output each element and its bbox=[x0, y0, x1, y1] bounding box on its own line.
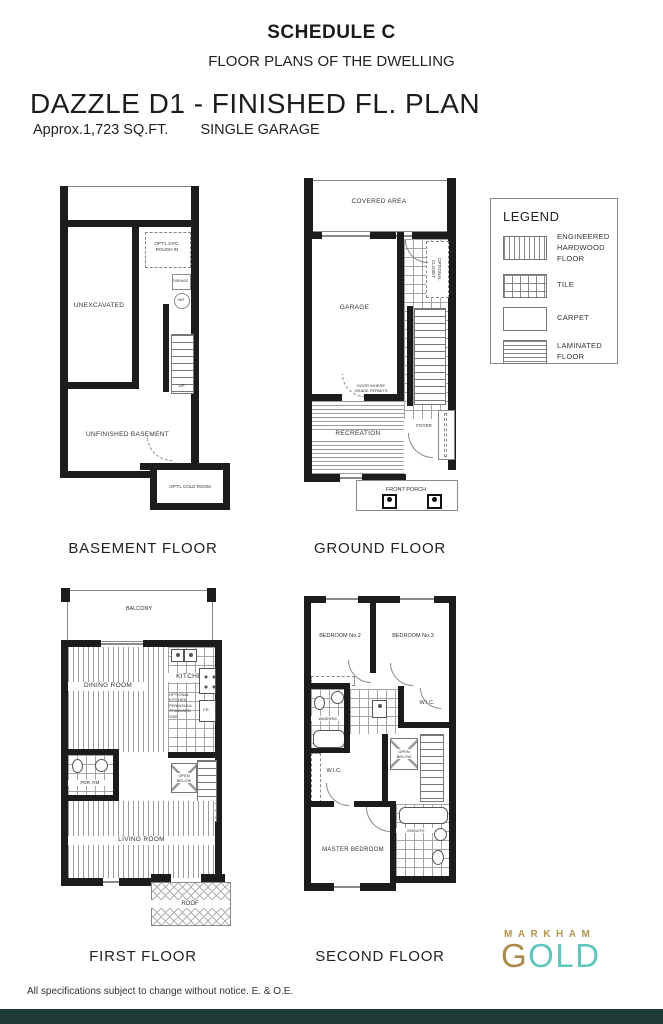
wall bbox=[201, 874, 225, 882]
wall bbox=[304, 883, 334, 891]
wall bbox=[151, 874, 171, 882]
room-label-recreation: RECREATION bbox=[312, 430, 404, 439]
wall bbox=[61, 588, 70, 602]
fridge-label: FR. bbox=[199, 707, 214, 712]
markham-gold-logo: MARKHAM GOLD bbox=[501, 929, 651, 971]
wall bbox=[304, 394, 342, 401]
wall bbox=[60, 220, 199, 227]
dining-room-floor bbox=[68, 647, 168, 752]
room-label-bedroom2: BEDROOM No.2 bbox=[311, 633, 369, 640]
sink-icon bbox=[434, 828, 447, 841]
wall bbox=[61, 640, 68, 885]
wall-line bbox=[60, 186, 199, 187]
plan-garage: SINGLE GARAGE bbox=[200, 122, 319, 138]
vanity-icon bbox=[372, 700, 387, 718]
wall bbox=[143, 640, 222, 647]
logo-gold-old: OLD bbox=[528, 937, 600, 974]
wall bbox=[398, 722, 456, 728]
wall bbox=[60, 471, 152, 478]
wall bbox=[449, 596, 456, 880]
room-label-garage: GARAGE bbox=[312, 304, 397, 313]
tile-swatch bbox=[503, 274, 547, 298]
wall bbox=[304, 178, 313, 239]
wall bbox=[304, 596, 311, 890]
room-label-rough-in: OPT'L 3-PC. ROUGH IN bbox=[146, 241, 188, 253]
wall bbox=[360, 883, 396, 891]
stair-wall bbox=[407, 306, 413, 406]
disclaimer-text: All specifications subject to change wit… bbox=[27, 986, 293, 997]
furnace-label: FURNACE bbox=[172, 279, 189, 283]
bathtub-icon bbox=[399, 807, 448, 824]
engineered-hardwood-swatch bbox=[503, 236, 547, 260]
room-label-balcony: BALCONY bbox=[67, 606, 211, 613]
patio-door-line bbox=[101, 643, 143, 645]
toilet-icon bbox=[432, 850, 444, 865]
sink-icon bbox=[331, 691, 344, 704]
footer-bar bbox=[0, 1009, 663, 1024]
open-below-label: OPEN BELOW bbox=[396, 749, 412, 760]
legend-title: LEGEND bbox=[503, 209, 617, 224]
plan-specs: Approx.1,723 SQ.FT. SINGLE GARAGE bbox=[33, 122, 348, 138]
wall bbox=[191, 186, 199, 470]
wall bbox=[60, 382, 139, 389]
room-label-roof: ROOF bbox=[151, 900, 229, 908]
ground-caption: GROUND FLOOR bbox=[300, 540, 460, 557]
window-line bbox=[340, 477, 362, 479]
wall bbox=[358, 596, 400, 603]
wall bbox=[61, 878, 103, 886]
open-below-box: OPEN BELOW bbox=[390, 738, 418, 770]
wall bbox=[168, 752, 222, 758]
sink-icon bbox=[95, 759, 108, 772]
first-caption: FIRST FLOOR bbox=[55, 948, 231, 965]
room-label-unexcavated: UNEXCAVATED bbox=[63, 302, 135, 311]
bathtub-icon bbox=[313, 730, 345, 748]
room-label-optional-closet: OPTIONAL CLOSET bbox=[430, 244, 442, 294]
stair-wall bbox=[382, 734, 388, 804]
wall bbox=[113, 749, 119, 799]
door-arc bbox=[408, 433, 433, 458]
porch-post-icon bbox=[382, 494, 397, 509]
plan-area: Approx.1,723 SQ.FT. bbox=[33, 122, 168, 138]
door-arc bbox=[147, 436, 172, 461]
legend-item-label: LAMINATED FLOOR bbox=[557, 341, 617, 363]
door-arc bbox=[342, 374, 365, 397]
wall bbox=[364, 394, 404, 401]
carpet-swatch bbox=[503, 307, 547, 331]
legend-item: ENGINEERED HARDWOOD FLOOR bbox=[503, 232, 617, 265]
toilet-icon bbox=[314, 696, 325, 710]
room-label-washroom: WASHRM bbox=[311, 716, 344, 721]
stair-wall bbox=[163, 304, 169, 392]
wall bbox=[140, 463, 230, 470]
wall bbox=[304, 232, 312, 482]
basement-caption: BASEMENT FLOOR bbox=[55, 540, 231, 557]
kitchen-sink-icon bbox=[171, 649, 184, 662]
schedule-title: SCHEDULE C bbox=[0, 22, 663, 44]
laminated-floor-swatch bbox=[503, 340, 547, 364]
wall bbox=[150, 503, 230, 510]
logo-gold-g: G bbox=[501, 937, 528, 974]
balcony-outline bbox=[67, 590, 213, 642]
second-caption: SECOND FLOOR bbox=[300, 948, 460, 965]
room-label-dining: DINING ROOM bbox=[68, 682, 148, 691]
hwt-label: HWT bbox=[174, 298, 188, 302]
kitchen-note: OPTIONAL KITCHEN PENINSULA STANDARD SIZE bbox=[169, 692, 193, 719]
stairs-up-label: UP bbox=[171, 383, 192, 389]
legend-item: TILE bbox=[503, 274, 617, 298]
kitchen-sink-icon bbox=[184, 649, 197, 662]
wall bbox=[304, 801, 334, 807]
second-floor-plan: BEDROOM No.2 BEDROOM No.3 WASHRM W.I.C. … bbox=[300, 588, 460, 933]
first-floor-plan: BALCONY DINING ROOM KITCHEN FR. OPTIONAL… bbox=[55, 588, 231, 926]
stairs bbox=[414, 308, 446, 405]
window-line bbox=[334, 886, 360, 888]
room-label-cold-room: OPT'L COLD ROOM bbox=[155, 484, 225, 490]
legend-item: LAMINATED FLOOR bbox=[503, 340, 617, 364]
plan-title: DAZZLE D1 - FINISHED FL. PLAN bbox=[30, 88, 480, 120]
wall bbox=[304, 474, 340, 482]
room-label-bedroom3: BEDROOM No.3 bbox=[380, 633, 446, 640]
legend-item: CARPET bbox=[503, 307, 617, 331]
stairs bbox=[420, 734, 444, 802]
wic-dashed bbox=[311, 753, 321, 803]
legend-item-label: ENGINEERED HARDWOOD FLOOR bbox=[557, 232, 617, 265]
schedule-subtitle: FLOOR PLANS OF THE DWELLING bbox=[0, 53, 663, 70]
porch-post-icon bbox=[427, 494, 442, 509]
room-label-powder-room: PDR. RM. bbox=[68, 780, 113, 786]
room-label-living: LIVING ROOM bbox=[68, 836, 215, 845]
front-porch-outline bbox=[356, 480, 458, 511]
stove-icon bbox=[199, 668, 216, 694]
room-label-wic-b: W.I.C. bbox=[314, 768, 354, 775]
toilet-icon bbox=[72, 759, 83, 773]
wall bbox=[397, 232, 404, 402]
closet-rod-line bbox=[444, 413, 447, 457]
room-label-covered-area: COVERED AREA bbox=[310, 198, 448, 207]
wall bbox=[390, 876, 456, 883]
room-label-unfinished-basement: UNFINISHED BASEMENT bbox=[60, 431, 195, 440]
logo-gold-text: GOLD bbox=[501, 940, 651, 971]
ground-floor-plan: COVERED AREA GARAGE OPTIONAL CLOSET DOOR… bbox=[300, 178, 460, 510]
wall bbox=[447, 178, 456, 239]
door-arc bbox=[390, 663, 413, 686]
window-line bbox=[103, 881, 119, 883]
legend: LEGEND ENGINEERED HARDWOOD FLOOR TILE CA… bbox=[490, 198, 618, 364]
open-below-label: OPEN BELOW bbox=[176, 773, 192, 784]
schedule-c-page: SCHEDULE C FLOOR PLANS OF THE DWELLING D… bbox=[0, 0, 663, 1024]
open-below-box: OPEN BELOW bbox=[171, 763, 197, 793]
room-label-master: MASTER BEDROOM bbox=[311, 846, 395, 854]
wall bbox=[207, 588, 216, 602]
garage-door-line bbox=[322, 235, 370, 237]
basement-floor-plan: UNEXCAVATED OPT'L 3-PC. ROUGH IN FURNACE… bbox=[55, 186, 231, 516]
room-label-ensuite: ENSUITE bbox=[396, 828, 436, 833]
door-arc bbox=[366, 807, 391, 832]
legend-item-label: CARPET bbox=[557, 313, 589, 324]
legend-item-label: TILE bbox=[557, 280, 574, 291]
wall bbox=[370, 232, 396, 239]
